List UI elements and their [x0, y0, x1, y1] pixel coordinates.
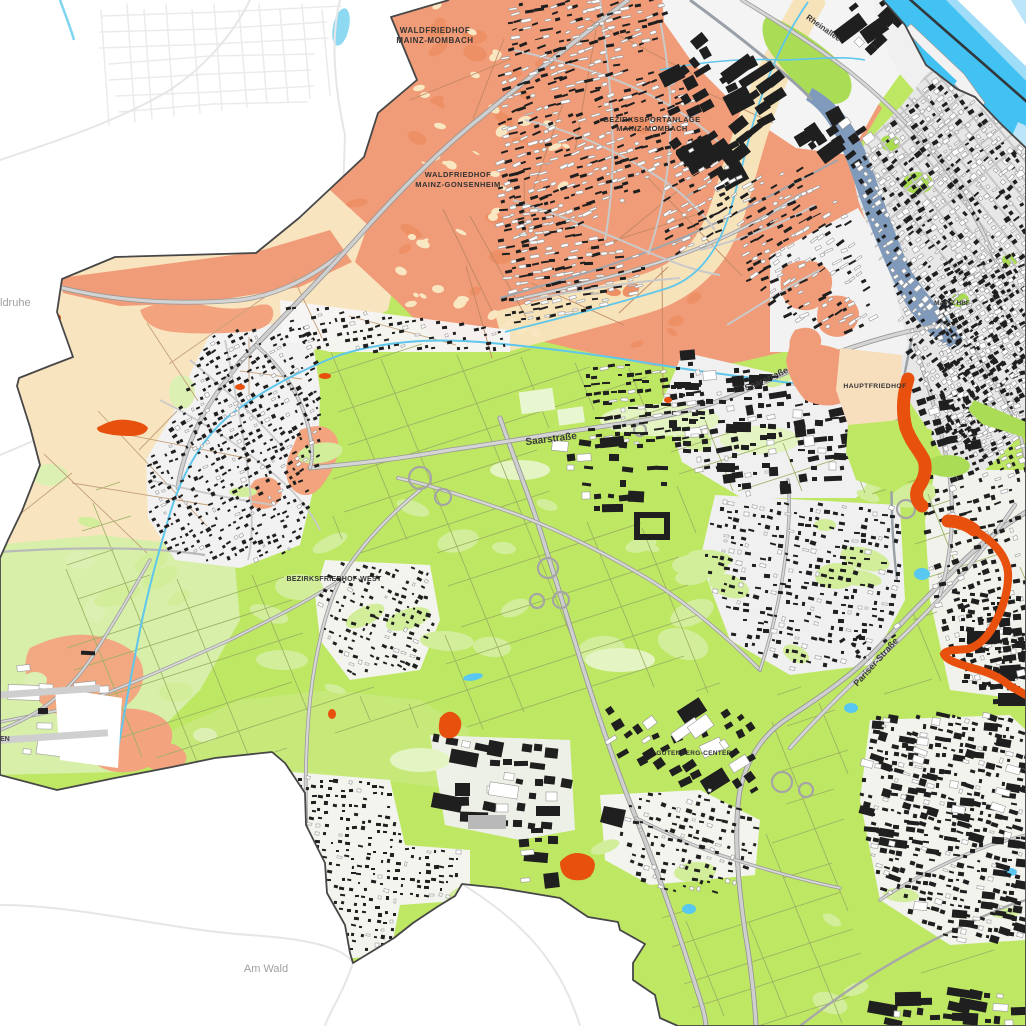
svg-text:HAUPTFRIEDHOF: HAUPTFRIEDHOF: [843, 383, 906, 390]
svg-text:EN: EN: [0, 736, 10, 743]
svg-text:MAINZ-MOMBACH: MAINZ-MOMBACH: [396, 36, 473, 45]
svg-text:Am Wald: Am Wald: [244, 963, 288, 975]
svg-text:BEZIRKSFRIEDHOF-WEST: BEZIRKSFRIEDHOF-WEST: [286, 576, 381, 583]
svg-text:MAINZ-MOMBACH: MAINZ-MOMBACH: [616, 124, 687, 133]
svg-text:GUTENBERG-CENTER: GUTENBERG-CENTER: [656, 750, 731, 757]
svg-text:MAINZ-GONSENHEIM: MAINZ-GONSENHEIM: [415, 180, 501, 189]
svg-text:MAINZ HBF: MAINZ HBF: [934, 300, 970, 307]
svg-text:WALDFRIEDHOF: WALDFRIEDHOF: [425, 170, 491, 179]
svg-text:ldruhe: ldruhe: [0, 297, 31, 309]
svg-text:BEZIRKSSPORTANLAGE: BEZIRKSSPORTANLAGE: [603, 115, 700, 124]
svg-text:WALDFRIEDHOF: WALDFRIEDHOF: [400, 26, 470, 35]
